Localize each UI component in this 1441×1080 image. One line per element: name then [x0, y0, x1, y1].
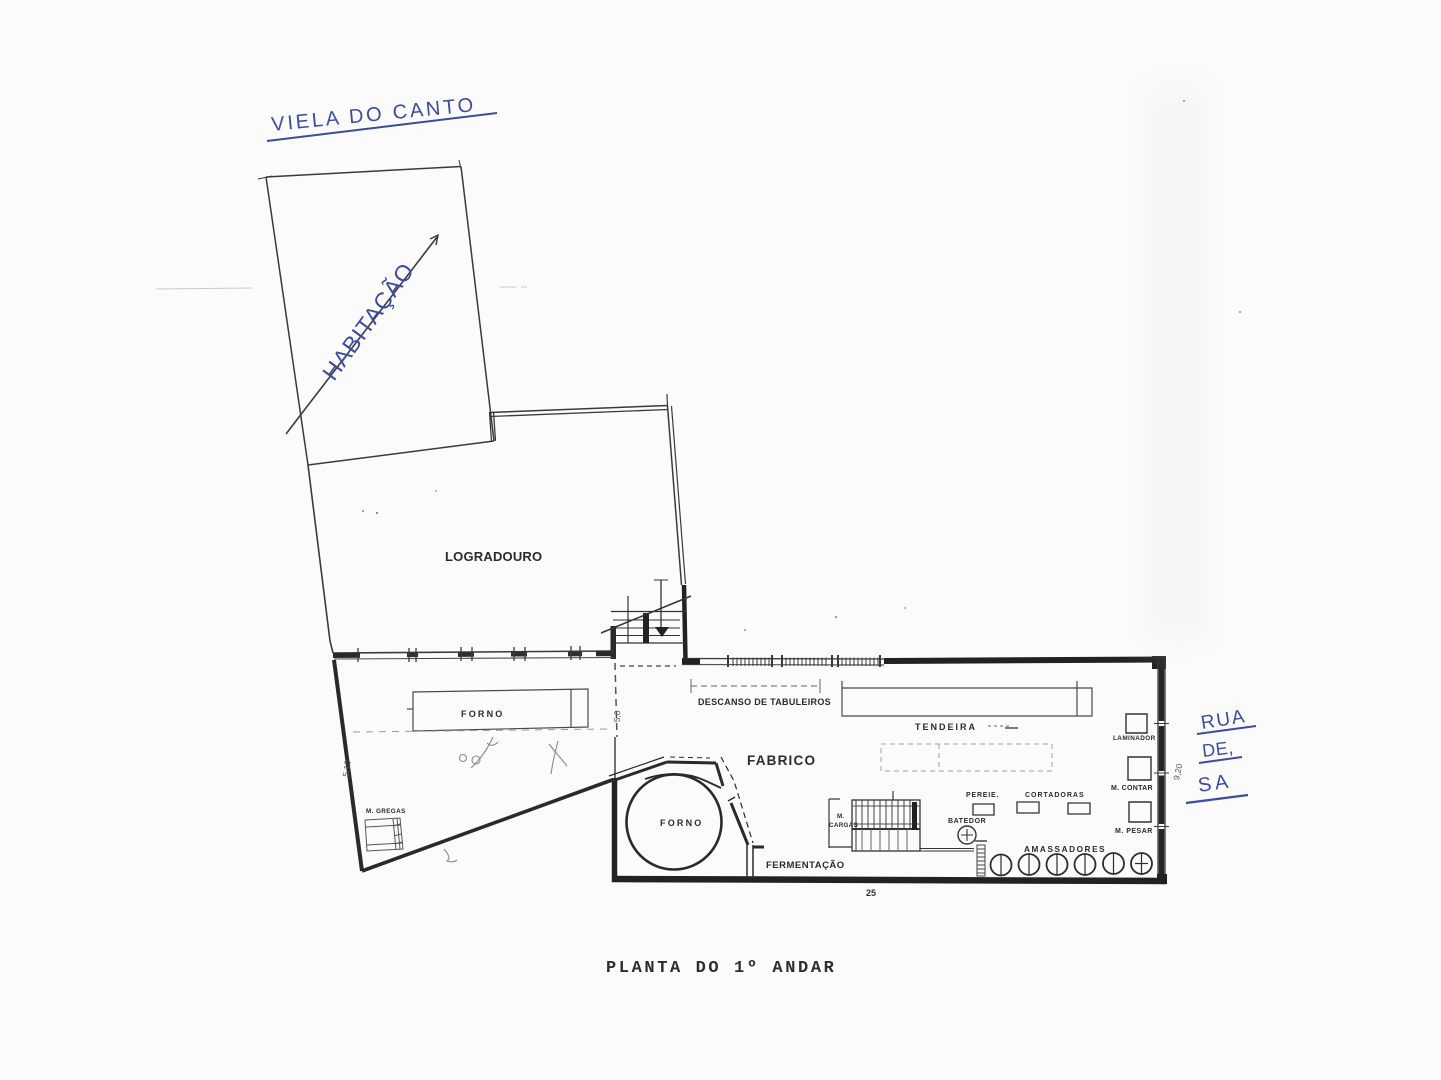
svg-text:FORNO: FORNO — [660, 818, 704, 828]
svg-text:PLANTA DO 1º ANDAR: PLANTA DO 1º ANDAR — [606, 959, 836, 978]
svg-text:LAMINADOR: LAMINADOR — [1113, 735, 1156, 742]
svg-text:AMASSADORES: AMASSADORES — [1024, 845, 1106, 854]
svg-text:TENDEIRA: TENDEIRA — [915, 722, 977, 732]
svg-text:5,0: 5,0 — [612, 710, 622, 722]
svg-text:DE,: DE, — [1201, 737, 1235, 761]
svg-text:FERMENTAÇÃO: FERMENTAÇÃO — [766, 860, 845, 871]
svg-text:FORNO: FORNO — [461, 709, 505, 719]
svg-text:FABRICO: FABRICO — [747, 753, 816, 768]
svg-text:CORTADORAS: CORTADORAS — [1025, 792, 1085, 799]
svg-text:M.: M. — [837, 813, 844, 820]
svg-text:DESCANSO DE TABULEIROS: DESCANSO DE TABULEIROS — [698, 697, 831, 707]
svg-text:SA: SA — [1197, 770, 1233, 796]
svg-text:BATEDOR: BATEDOR — [948, 818, 986, 825]
svg-text:M. GREGAS: M. GREGAS — [366, 808, 406, 815]
svg-text:CARGAS: CARGAS — [829, 822, 858, 829]
svg-text:M. PESAR: M. PESAR — [1115, 828, 1153, 835]
svg-text:25: 25 — [866, 888, 876, 898]
svg-text:PEREIE.: PEREIE. — [966, 792, 999, 799]
svg-text:LOGRADOURO: LOGRADOURO — [445, 549, 542, 564]
svg-text:M. CONTAR: M. CONTAR — [1111, 785, 1153, 792]
